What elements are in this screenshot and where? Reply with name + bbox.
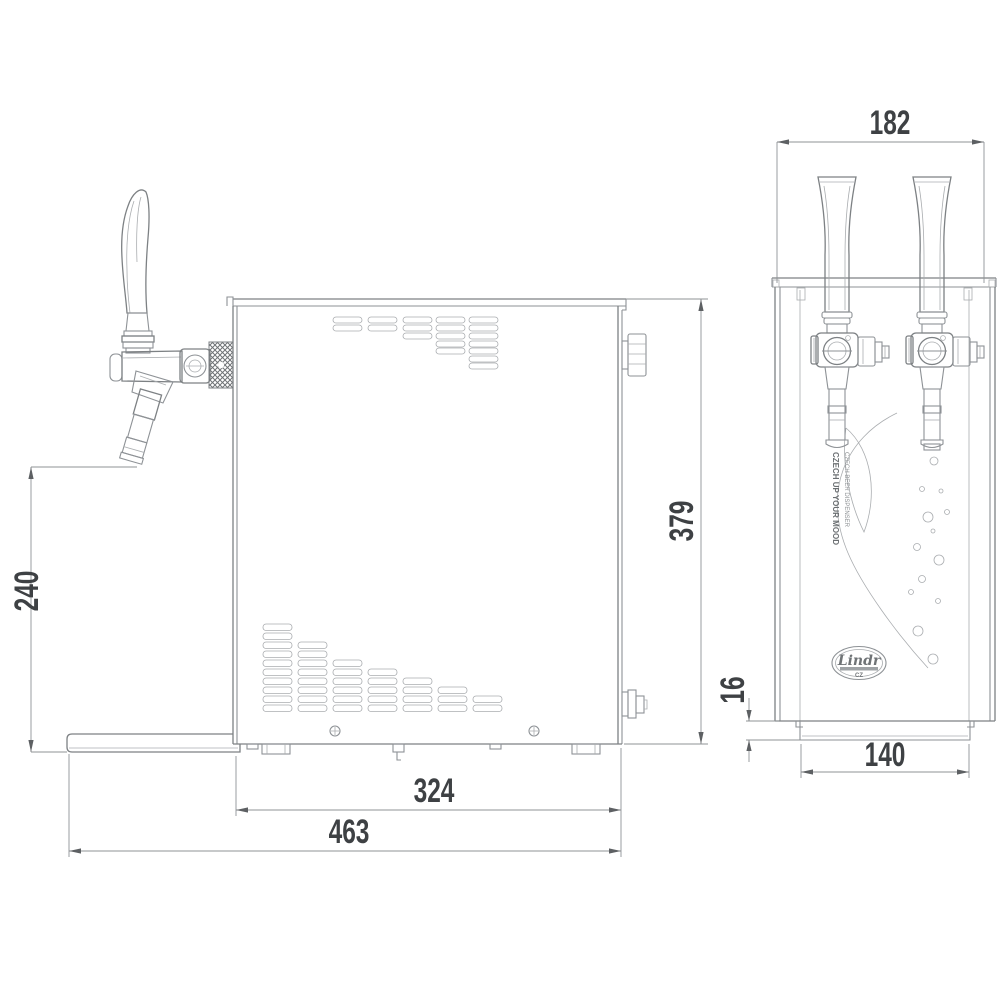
dim-240: 240: [8, 467, 137, 752]
dim-324: 324: [236, 748, 621, 857]
dim-240-label: 240: [8, 571, 46, 612]
technical-drawing-page: 240 379 324 463: [0, 0, 1000, 1000]
slogan-line-2: CZECH BEER DISPENSER: [843, 452, 849, 528]
front-tap-right: [906, 177, 984, 450]
dim-463-label: 463: [329, 813, 370, 851]
dim-140-label: 140: [865, 736, 906, 774]
side-view: 240 379 324 463: [8, 190, 708, 857]
dim-379-label: 379: [663, 501, 701, 542]
lindr-logo: Lindr CZ: [832, 647, 886, 680]
drip-tray: [67, 734, 240, 752]
dim-16: 16: [714, 676, 801, 762]
front-view: CZECH UP YOUR MOOD CZECH BEER DISPENSER …: [714, 104, 996, 778]
slogan-line-1: CZECH UP YOUR MOOD: [831, 452, 840, 545]
dim-463: 463: [69, 754, 621, 857]
dim-324-label: 324: [414, 772, 455, 810]
screw-icon: [330, 726, 539, 736]
bubbles-graphic: [909, 457, 950, 664]
dim-16-label: 16: [714, 676, 752, 703]
top-vent-grid: [333, 317, 498, 369]
dim-140: 140: [801, 736, 969, 778]
slogan-text: CZECH UP YOUR MOOD CZECH BEER DISPENSER: [831, 452, 849, 545]
front-body: [772, 278, 996, 740]
dim-182: 182: [777, 104, 984, 283]
front-tap-left: [811, 177, 889, 448]
logo-country: CZ: [855, 673, 863, 679]
bottom-vent-grid: [263, 624, 502, 712]
logo-script: Lindr: [837, 653, 882, 669]
side-tap-assembly: [110, 190, 233, 464]
dim-379: 379: [624, 299, 708, 744]
inlet-connector: [622, 334, 646, 376]
feet: [247, 744, 600, 760]
wave-graphic: [837, 413, 928, 668]
side-body: [227, 297, 626, 744]
drain-fitting: [622, 690, 647, 718]
beer-cooler-dimension-drawing: 240 379 324 463: [0, 0, 1000, 1000]
dim-182-label: 182: [870, 104, 911, 142]
